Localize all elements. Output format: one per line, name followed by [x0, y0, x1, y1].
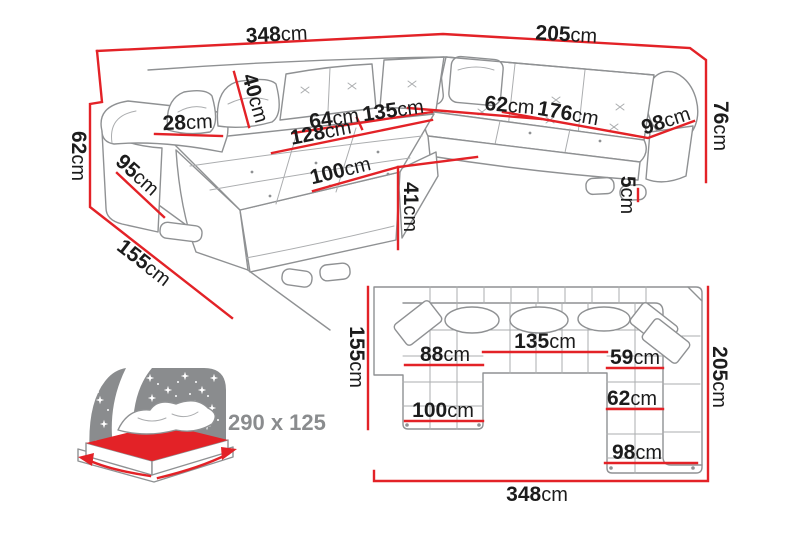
tv-label-right-seat-width: 59cm	[610, 346, 660, 369]
perspective-view: 348cm 205cm 76cm 40cm 64cm 135cm 62cm 17…	[67, 21, 732, 330]
bed-icon	[78, 368, 237, 482]
tv-label-right-depth: 205cm	[708, 346, 731, 408]
tv-label-chaise-width: 100cm	[412, 399, 474, 422]
top-view-pillow-1	[445, 307, 499, 333]
tv-label-right-section-width: 98cm	[612, 441, 662, 464]
top-view: 155cm 88cm 135cm 59cm 205cm 100cm 62cm 9…	[345, 287, 731, 506]
chaise-leg-1	[281, 268, 313, 288]
dim-label-armrest-width: 28cm	[162, 110, 213, 136]
dim-label-corner-seat-depth: 62cm	[484, 92, 536, 119]
top-view-pillow-3	[578, 307, 630, 331]
dim-label-armrest-height: 62cm	[67, 131, 90, 181]
dim-label-backrest-height: 76cm	[709, 101, 732, 151]
dim-label-leg-height: 5cm	[616, 176, 639, 214]
tv-label-left-seat-width: 88cm	[420, 343, 470, 366]
dim-label-total-width: 348cm	[245, 21, 308, 47]
tv-label-total-width: 348cm	[506, 483, 568, 506]
product-dimension-diagram: 348cm 205cm 76cm 40cm 64cm 135cm 62cm 17…	[0, 0, 800, 533]
tv-label-right-inner-width: 62cm	[607, 387, 657, 410]
dim-label-seat-height: 41cm	[399, 182, 422, 232]
diagram-svg: 348cm 205cm 76cm 40cm 64cm 135cm 62cm 17…	[0, 0, 800, 533]
dim-label-right-section-width: 205cm	[535, 21, 598, 47]
tv-label-left-depth: 155cm	[345, 326, 368, 388]
chaise-leg-2	[319, 262, 351, 281]
blanket	[118, 401, 215, 434]
sleeping-function: 290 x 125	[78, 368, 326, 482]
right-leg-1	[586, 177, 615, 194]
bed-size-label: 290 x 125	[228, 410, 326, 435]
dim-label-total-depth: 155cm	[113, 235, 176, 291]
tv-label-middle-seat-width: 135cm	[514, 330, 576, 353]
